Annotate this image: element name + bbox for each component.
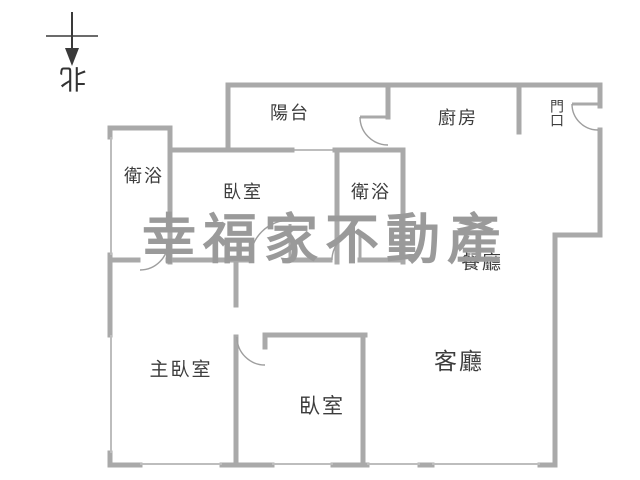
room-label-bedroom-2: 臥室 xyxy=(299,390,345,420)
room-label-bathroom-1: 衛浴 xyxy=(124,162,164,188)
room-label-bedroom-1: 臥室 xyxy=(223,178,263,204)
room-label-entrance: 門口 xyxy=(547,99,567,127)
room-label-bathroom-2: 衛浴 xyxy=(351,178,391,204)
floor-plan: 北 陽台 廚房 門口 衛浴 臥室 衛浴 餐廳 主臥室 臥室 客廳 幸福家不動產 xyxy=(0,0,640,480)
agency-watermark: 幸福家不動產 xyxy=(142,213,522,267)
north-label: 北 xyxy=(58,62,88,92)
exterior-walls xyxy=(110,85,600,465)
room-label-balcony: 陽台 xyxy=(270,99,310,125)
room-label-kitchen: 廚房 xyxy=(438,104,478,130)
room-label-living-room: 客廳 xyxy=(434,342,484,376)
room-label-master-bedroom: 主臥室 xyxy=(149,355,212,382)
north-arrow-icon xyxy=(46,12,98,66)
